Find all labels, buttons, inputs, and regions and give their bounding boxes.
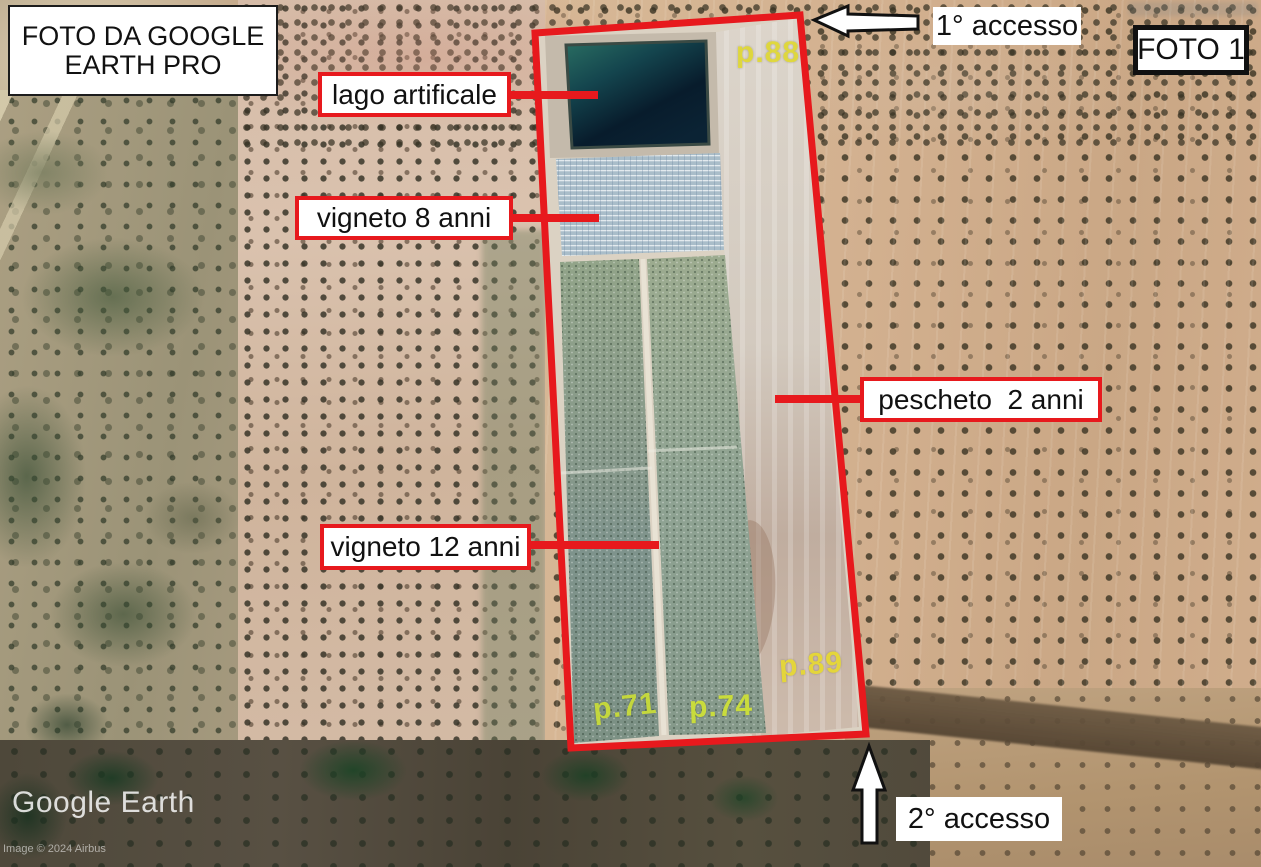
- access-1-arrow-icon: [814, 6, 918, 36]
- source-title-line1: FOTO DA GOOGLE: [22, 22, 265, 50]
- google-earth-watermark: Google Earth: [12, 786, 195, 820]
- access-1-label: 1° accesso: [933, 7, 1081, 45]
- access-2-arrow-icon: [853, 746, 885, 843]
- parcel-label-p89: p.89: [778, 646, 844, 684]
- callout-lake: lago artificale: [318, 72, 511, 117]
- parcel-label-p88: p.88: [736, 36, 800, 70]
- callout-vineyard-8yr: vigneto 8 anni: [295, 196, 513, 240]
- callout-peach-orchard: pescheto 2 anni: [860, 377, 1102, 422]
- source-title-box: FOTO DA GOOGLE EARTH PRO: [8, 5, 278, 96]
- access-2-label: 2° accesso: [896, 797, 1062, 841]
- parcel-label-p74: p.74: [688, 689, 753, 725]
- imagery-credit: Image © 2024 Airbus: [3, 843, 106, 855]
- annotated-satellite-photo: FOTO DA GOOGLE EARTH PRO FOTO 1 lago art…: [0, 0, 1261, 867]
- vineyard-8yr-rows: [556, 153, 724, 256]
- source-title-line2: EARTH PRO: [64, 51, 221, 79]
- photo-number-tag: FOTO 1: [1133, 25, 1249, 75]
- parcel-label-p71: p.71: [591, 687, 658, 728]
- callout-vineyard-12yr: vigneto 12 anni: [320, 524, 531, 570]
- map-annotations-overlay: [0, 0, 1261, 867]
